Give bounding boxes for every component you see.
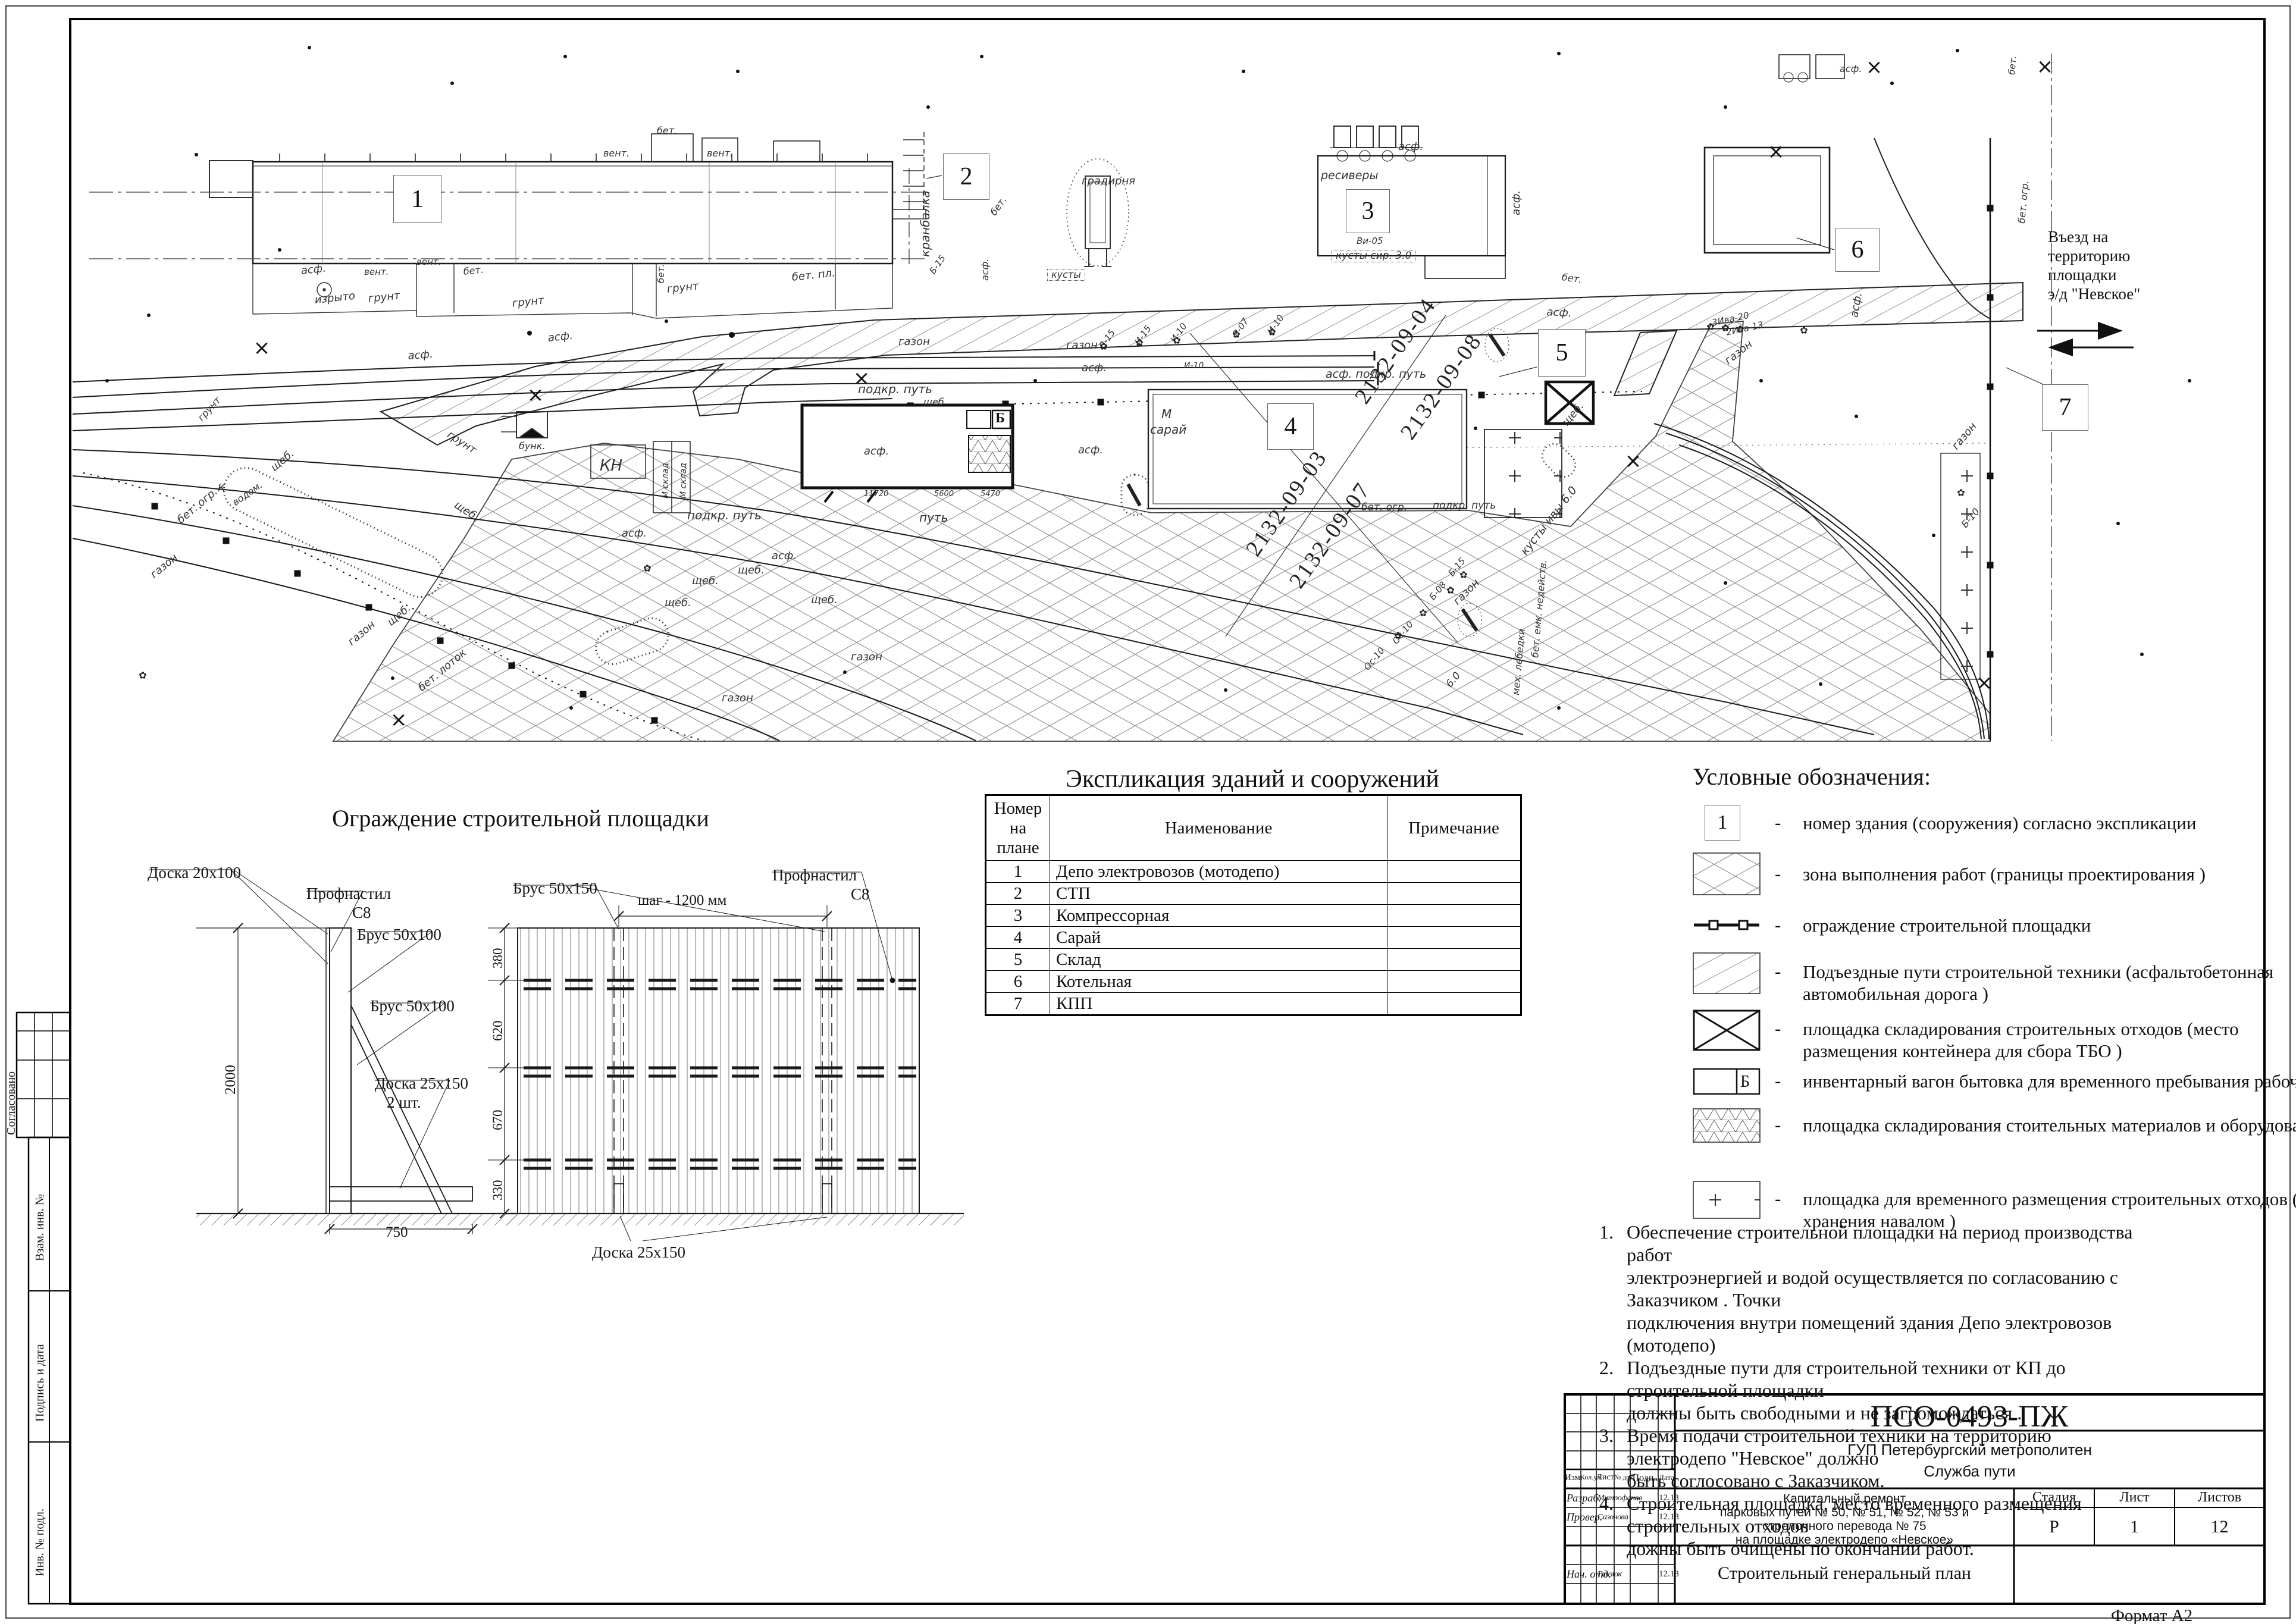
explication-cell-name: Депо электровозов (мотодепо): [1050, 861, 1387, 883]
plan-label: ресиверы: [1321, 170, 1379, 181]
fence-detail-label: Доска 25х150: [592, 1243, 685, 1262]
fence-detail-label: 380: [490, 948, 506, 969]
explication-title: Экспликация зданий и сооружений: [1011, 765, 1493, 794]
plan-label: асф.: [1078, 445, 1103, 456]
plan-label: асф.: [864, 446, 889, 457]
col-kol: Кол.уч.: [1580, 1473, 1597, 1482]
col-list: Лист: [1596, 1473, 1614, 1482]
bush-icon: ✿: [1232, 329, 1240, 340]
entrance-note-line: э/д "Невское": [2048, 284, 2140, 303]
bush-icon: ✿: [1419, 607, 1427, 619]
note-number: 1.: [1599, 1221, 1627, 1356]
survey-cross-icon: ×: [1768, 140, 1785, 164]
stamp-agreed: Согласовано: [5, 1071, 18, 1135]
fence-detail-label: С8: [851, 885, 870, 904]
legend-road-swatch: [1693, 952, 1761, 994]
plan-label: асф.: [981, 259, 990, 281]
bush-icon: ✿: [1706, 321, 1714, 333]
col-podp: Подп.: [1630, 1473, 1658, 1484]
legend-label: зона выполнения работ (границы проектиро…: [1803, 863, 2206, 885]
plan-label: вент.: [364, 268, 389, 277]
explication-header-number: Номер на плане: [986, 795, 1050, 861]
explication-cell-number: 5: [986, 949, 1050, 971]
fence-detail-label: 2000: [223, 1065, 239, 1095]
plan-label: асф.: [772, 551, 797, 562]
survey-cross-icon: ×: [1866, 55, 1883, 79]
entrance-note-line: Въезд на: [2048, 227, 2140, 246]
col-data: Дата: [1658, 1473, 1675, 1482]
org-name: ГУП Петербургский метрополитен: [1675, 1441, 2264, 1459]
note-line: Подъездные пути для строительной техники…: [1627, 1356, 2147, 1402]
explication-cell-note: [1387, 861, 1521, 883]
bush-icon: ✿: [139, 670, 146, 681]
plan-label: сарай: [1150, 424, 1186, 435]
plan-label: асф.: [408, 349, 433, 362]
bush-icon: ✿: [1459, 569, 1467, 581]
stamp-podpis: Подпись и дата: [33, 1344, 47, 1422]
plan-label: Ви-05: [1357, 237, 1383, 246]
doc-number: ПСО-0493-ПЖ: [1809, 1399, 2130, 1434]
building-number-box: 3: [1346, 189, 1390, 233]
legend-label: ограждение строительной площадки: [1803, 914, 2091, 936]
stamp-vzam: Взам. инв. №: [33, 1194, 47, 1261]
bush-icon: ✿: [643, 563, 651, 574]
row-date: 12.18: [1659, 1493, 1679, 1503]
plan-label: подкр. путь: [1433, 501, 1496, 511]
plan-label: бунк.: [519, 441, 546, 451]
fence-detail-label: 330: [490, 1180, 506, 1201]
explication-cell-number: 7: [986, 993, 1050, 1015]
fence-detail-label: Брус 50х100: [357, 926, 441, 944]
fence-detail-label: Доска 25х150: [375, 1074, 468, 1093]
plan-label: бет.: [657, 264, 666, 283]
explication-row: 7КПП: [986, 993, 1521, 1015]
explication-cell-note: [1387, 883, 1521, 905]
plan-label: КН: [600, 458, 622, 474]
fence-detail-label: Профнастил: [772, 866, 857, 885]
explication-cell-name: Сарай: [1050, 927, 1387, 949]
sheets-header: Листов: [2175, 1490, 2264, 1506]
drawing-sheet: асф.изрытогрунтгрунтбет. пл.бет.вент.вен…: [0, 0, 2296, 1624]
legend-waste-swatch: [1693, 1009, 1761, 1051]
building-number-box: 6: [1835, 228, 1880, 272]
plan-label: щеб.: [665, 598, 691, 609]
note-line: электроэнергией и водой осуществляется п…: [1627, 1266, 2147, 1311]
plan-label: газон: [1066, 340, 1098, 351]
explication-cell-number: 6: [986, 971, 1050, 993]
row-date: 12.18: [1659, 1512, 1679, 1522]
legend-label: площадка складирования строительных отхо…: [1803, 1018, 2239, 1062]
plan-label: асф.: [1511, 190, 1522, 215]
plan-label: асф.: [1840, 64, 1862, 74]
fence-detail-label: 750: [386, 1224, 408, 1241]
format-label: Формат А2: [2111, 1606, 2192, 1624]
legend: 1 - номер здания (сооружения) согласно э…: [1693, 764, 2288, 1240]
stamp-inv: Инв. № подл.: [33, 1509, 47, 1576]
fence-detail-label: Профнастил: [306, 885, 391, 903]
plan-label: газон: [851, 652, 882, 663]
plan-label: подкр. путь: [687, 509, 762, 521]
building-number-box: 2: [943, 153, 989, 200]
legend-wagon-swatch: [1693, 1068, 1761, 1095]
explication-row: 3Компрессорная: [986, 905, 1521, 927]
row-role: Разраб.: [1567, 1492, 1601, 1504]
explication-row: 5Склад: [986, 949, 1521, 971]
plan-label: бет.: [657, 126, 677, 136]
fence-detail-label: Брус 50х150: [513, 879, 597, 898]
legend-number-swatch: 1: [1705, 805, 1740, 841]
entrance-note: Въезд на территорию площадки э/д "Невско…: [2048, 227, 2140, 303]
explication-row: 4Сарай: [986, 927, 1521, 949]
explication-table: Номер на плане Наименование Примечание 1…: [985, 794, 1522, 1016]
legend-fence-swatch: [1693, 918, 1761, 932]
plan-label: асф.: [1398, 142, 1423, 152]
bytovka-b-marker: Б: [995, 410, 1005, 427]
plan-label: вент.: [707, 149, 733, 158]
plan-label: кусты сир. 3.0: [1332, 250, 1415, 262]
explication-row: 1Депо электровозов (мотодепо): [986, 861, 1521, 883]
plan-label: М склад: [662, 463, 670, 499]
col-izm: Изм.: [1565, 1473, 1581, 1483]
entrance-note-line: площадки: [2048, 265, 2140, 284]
bush-icon: ✿: [1268, 327, 1276, 338]
row-name: Митрофанов: [1598, 1494, 1642, 1503]
sheet-value: 1: [2094, 1517, 2175, 1537]
legend-label: инвентарный вагон бытовка для временного…: [1803, 1070, 2296, 1092]
plan-label: М склад: [679, 463, 688, 499]
bush-icon: ✿: [1736, 324, 1744, 335]
plan-label: кранбалка: [919, 190, 931, 257]
plan-label: асф.: [1546, 307, 1572, 319]
plan-label: щеб: [923, 397, 944, 407]
plan-label: бет.: [463, 265, 484, 276]
plan-label: щеб.: [692, 576, 719, 587]
survey-cross-icon: ×: [527, 383, 544, 407]
plan-label: бет.: [1561, 272, 1583, 285]
plan-label: вент.: [416, 258, 441, 267]
fence-detail-title: Ограждение строительной площадки: [330, 804, 711, 832]
fence-detail-label: шаг - 1200 мм: [638, 892, 726, 909]
explication-row: 6Котельная: [986, 971, 1521, 993]
plan-label: путь: [919, 512, 948, 523]
explication-cell-name: Компрессорная: [1050, 905, 1387, 927]
fence-detail-label: С8: [352, 904, 371, 922]
bush-icon: ✿: [1957, 487, 1965, 499]
plan-label: вент.: [603, 149, 629, 158]
explication-cell-name: КПП: [1050, 993, 1387, 1015]
bush-icon: ✿: [1394, 630, 1402, 641]
bush-icon: ✿: [1100, 341, 1107, 352]
plan-label: 11720: [864, 490, 888, 498]
legend-zone-swatch: [1693, 852, 1761, 895]
plan-label: газон: [722, 693, 753, 704]
legend-materials-swatch: [1693, 1108, 1761, 1143]
explication-cell-note: [1387, 949, 1521, 971]
plan-label: бет.: [2007, 55, 2018, 75]
explication-cell-note: [1387, 927, 1521, 949]
legend-wagon-letter: Б: [1740, 1073, 1750, 1092]
stage-value: Р: [2014, 1517, 2094, 1537]
fence-detail-label: 670: [490, 1110, 506, 1131]
construction-note: 1.Обеспечение строительной площадки на п…: [1599, 1221, 2147, 1356]
plan-label: И-10: [1184, 362, 1204, 370]
survey-cross-icon: ×: [253, 336, 271, 360]
row-date: 12.18: [1659, 1569, 1679, 1579]
bush-icon: ✿: [1800, 325, 1808, 336]
legend-label: номер здания (сооружения) согласно экспл…: [1803, 812, 2196, 834]
plan-label: М: [1161, 408, 1172, 420]
sheets-value: 12: [2175, 1517, 2264, 1537]
plan-label: щеб.: [811, 595, 838, 606]
survey-cross-icon: ×: [1976, 671, 1993, 695]
sheet-header: Лист: [2094, 1490, 2175, 1506]
project-desc: Капитальный ремонтпарковых путей № 50, №…: [1678, 1492, 2011, 1547]
plan-label: бет. огр.: [1361, 503, 1407, 513]
explication-header-name: Наименование: [1050, 795, 1387, 861]
explication-cell-number: 3: [986, 905, 1050, 927]
entrance-note-line: территорию: [2048, 246, 2140, 265]
plan-label: 5470: [981, 490, 1000, 498]
survey-cross-icon: ×: [390, 708, 408, 732]
bush-icon: ✿: [1721, 322, 1729, 334]
explication-cell-note: [1387, 905, 1521, 927]
sheet-title: Строительный генеральный план: [1675, 1563, 2014, 1584]
note-line: подключения внутри помещений здания Депо…: [1627, 1311, 2147, 1356]
plan-label: асф.: [300, 264, 327, 277]
explication-cell-name: Склад: [1050, 949, 1387, 971]
explication-cell-note: [1387, 993, 1521, 1015]
bush-icon: ✿: [1173, 335, 1180, 346]
note-line: Обеспечение строительной площадки на пер…: [1627, 1221, 2147, 1266]
explication-cell-number: 1: [986, 861, 1050, 883]
plan-label: щеб.: [738, 565, 765, 576]
org-dept: Служба пути: [1675, 1462, 2264, 1481]
plan-label: асф.: [547, 331, 574, 344]
row-name: Ганзюк: [1598, 1570, 1621, 1579]
legend-label: площадка складирования стоительных матер…: [1803, 1114, 2296, 1136]
building-number-box: 5: [1538, 329, 1586, 377]
building-number-box: 4: [1267, 403, 1314, 450]
explication-header-note: Примечание: [1387, 795, 1521, 861]
row-name: Сазонова: [1598, 1513, 1628, 1522]
legend-label: Подъездные пути строительной техники (ас…: [1803, 961, 2273, 1005]
fence-detail-label: 2 шт.: [387, 1093, 421, 1112]
explication-cell-note: [1387, 971, 1521, 993]
building-number-box: 1: [393, 175, 441, 223]
plan-label: градирня: [1082, 176, 1135, 187]
bush-icon: ✿: [1135, 337, 1143, 349]
plan-label: асф.: [1082, 363, 1107, 374]
stage-header: Стадия: [2014, 1490, 2094, 1506]
fence-detail-label: Доска 20х100: [148, 864, 241, 882]
legend-temp-waste-swatch: [1693, 1181, 1761, 1219]
fence-detail-label: Брус 50х100: [370, 997, 455, 1015]
plan-label: кусты: [1047, 269, 1085, 281]
plan-label: 5600: [934, 490, 954, 498]
explication-cell-name: Котельная: [1050, 971, 1387, 993]
fence-detail-label: 620: [490, 1021, 506, 1042]
note-number: 2.: [1599, 1356, 1627, 1424]
plan-label: асф.: [622, 528, 647, 539]
plan-label: газон: [898, 337, 930, 347]
col-doc: № док.: [1614, 1473, 1630, 1482]
explication-row: 2СТП: [986, 883, 1521, 905]
note-text: Обеспечение строительной площадки на пер…: [1627, 1221, 2147, 1356]
bush-icon: ✿: [1446, 585, 1454, 596]
survey-cross-icon: ×: [1625, 449, 1642, 473]
plan-label: К: [218, 483, 225, 494]
explication-cell-number: 4: [986, 927, 1050, 949]
building-number-box: 7: [2042, 384, 2088, 431]
survey-cross-icon: ×: [2037, 55, 2054, 79]
explication-cell-name: СТП: [1050, 883, 1387, 905]
explication-cell-number: 2: [986, 883, 1050, 905]
survey-cross-icon: ×: [853, 366, 870, 390]
